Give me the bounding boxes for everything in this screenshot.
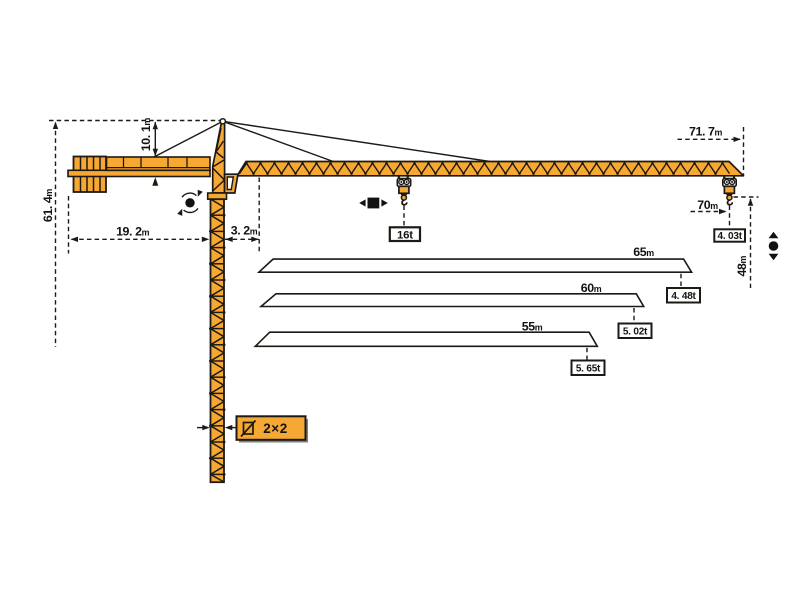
svg-text:61. 4m: 61. 4m	[41, 189, 55, 223]
svg-text:5. 65t: 5. 65t	[576, 363, 601, 374]
svg-text:71. 7m: 71. 7m	[689, 124, 723, 138]
svg-text:16t: 16t	[397, 229, 413, 241]
svg-text:4. 03t: 4. 03t	[717, 231, 742, 242]
svg-text:19. 2m: 19. 2m	[116, 225, 150, 239]
svg-text:5. 02t: 5. 02t	[623, 326, 648, 337]
svg-text:4. 48t: 4. 48t	[671, 291, 696, 302]
svg-text:55m: 55m	[522, 319, 543, 333]
svg-text:48m: 48m	[735, 255, 749, 276]
svg-text:2×2: 2×2	[263, 421, 287, 436]
svg-text:70m: 70m	[697, 198, 718, 212]
svg-text:3. 2m: 3. 2m	[231, 224, 258, 238]
svg-text:65m: 65m	[633, 245, 654, 259]
svg-text:10. 1m: 10. 1m	[139, 118, 153, 152]
svg-text:60m: 60m	[581, 281, 602, 295]
